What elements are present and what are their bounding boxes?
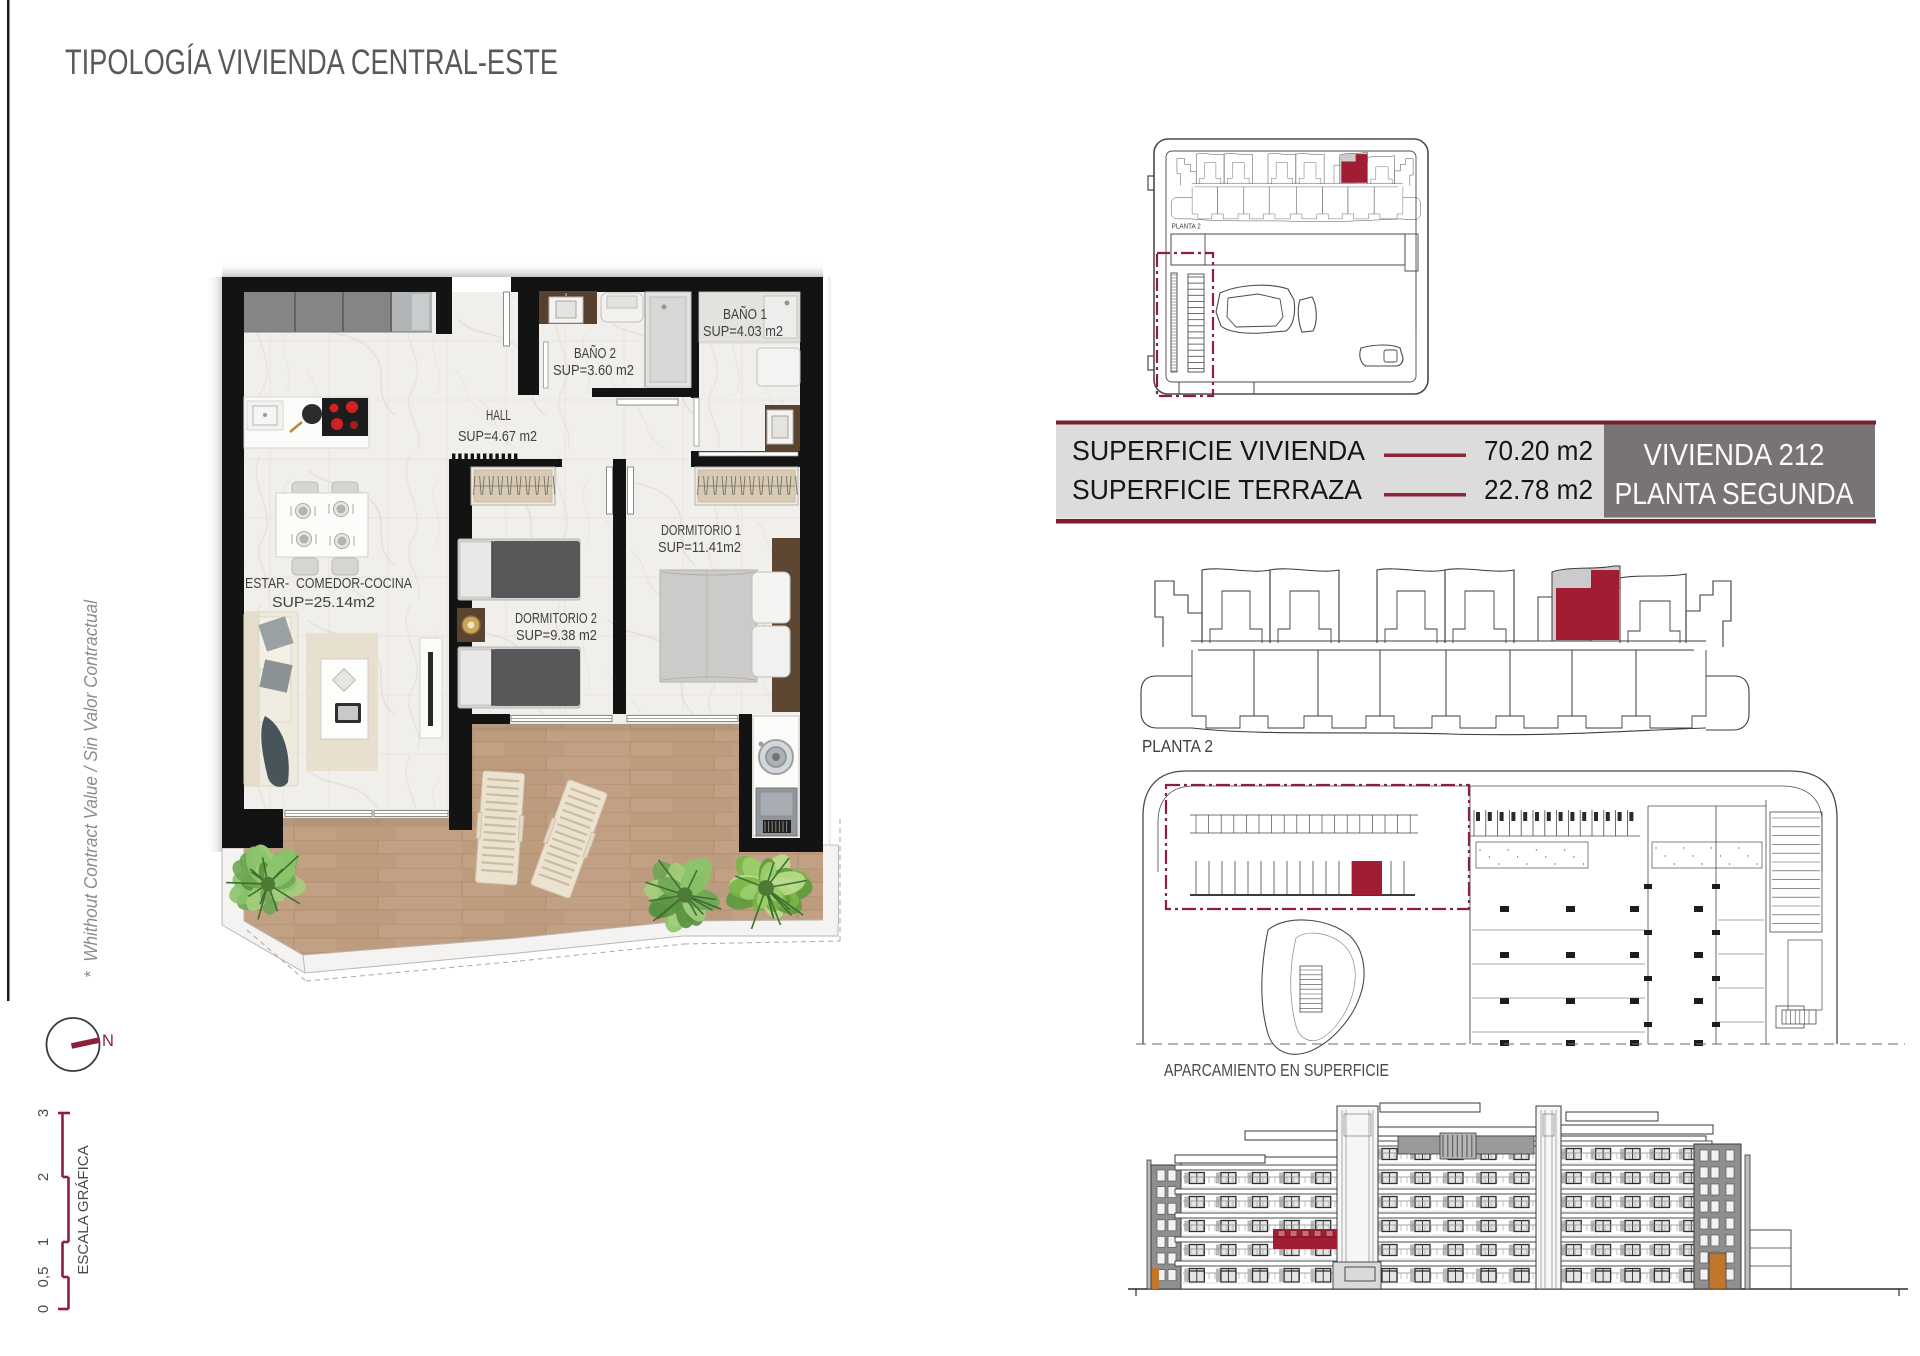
- svg-text:DORMITORIO 1: DORMITORIO 1: [661, 522, 741, 539]
- svg-text:HALL: HALL: [486, 407, 511, 424]
- svg-text:* Whithout Contract Value / S: * Whithout Contract Value / Sin Valor Co…: [81, 599, 101, 978]
- svg-text:PLANTA SEGUNDA: PLANTA SEGUNDA: [1615, 476, 1854, 511]
- svg-text:70.20 m2: 70.20 m2: [1484, 435, 1593, 466]
- svg-text:SUP=4.03 m2: SUP=4.03 m2: [703, 323, 783, 340]
- svg-text:ESCALA GRÁFICA: ESCALA GRÁFICA: [75, 1145, 92, 1274]
- svg-text:SUP=3.60 m2: SUP=3.60 m2: [553, 362, 634, 379]
- svg-text:SUPERFICIE VIVIENDA: SUPERFICIE VIVIENDA: [1072, 435, 1365, 466]
- svg-text:SUPERFICIE TERRAZA: SUPERFICIE TERRAZA: [1072, 474, 1362, 505]
- svg-text:1: 1: [35, 1238, 52, 1246]
- svg-text:DORMITORIO 2: DORMITORIO 2: [515, 610, 597, 627]
- svg-text:SUP=11.41m2: SUP=11.41m2: [658, 539, 741, 556]
- svg-text:SUP=9.38 m2: SUP=9.38 m2: [516, 627, 597, 644]
- svg-text:BAÑO 2: BAÑO 2: [574, 345, 616, 362]
- svg-text:0,5: 0,5: [35, 1267, 52, 1288]
- svg-text:BAÑO 1: BAÑO 1: [723, 306, 767, 323]
- svg-text:PLANTA 2: PLANTA 2: [1142, 736, 1213, 756]
- svg-text:0: 0: [35, 1305, 52, 1313]
- svg-text:2: 2: [35, 1173, 52, 1181]
- svg-text:22.78 m2: 22.78 m2: [1484, 474, 1593, 505]
- svg-text:SUP=4.67 m2: SUP=4.67 m2: [458, 428, 537, 445]
- svg-text:N: N: [102, 1032, 114, 1050]
- svg-text:ESTAR- COMEDOR-COCINA: ESTAR- COMEDOR-COCINA: [245, 575, 412, 592]
- svg-text:TIPOLOGÍA VIVIENDA CENTRAL-EST: TIPOLOGÍA VIVIENDA CENTRAL-ESTE: [65, 43, 558, 82]
- svg-text:3: 3: [35, 1109, 52, 1117]
- svg-text:VIVIENDA 212: VIVIENDA 212: [1644, 437, 1825, 472]
- svg-text:APARCAMIENTO EN SUPERFICIE: APARCAMIENTO EN SUPERFICIE: [1164, 1060, 1389, 1080]
- svg-text:SUP=25.14m2: SUP=25.14m2: [272, 594, 375, 611]
